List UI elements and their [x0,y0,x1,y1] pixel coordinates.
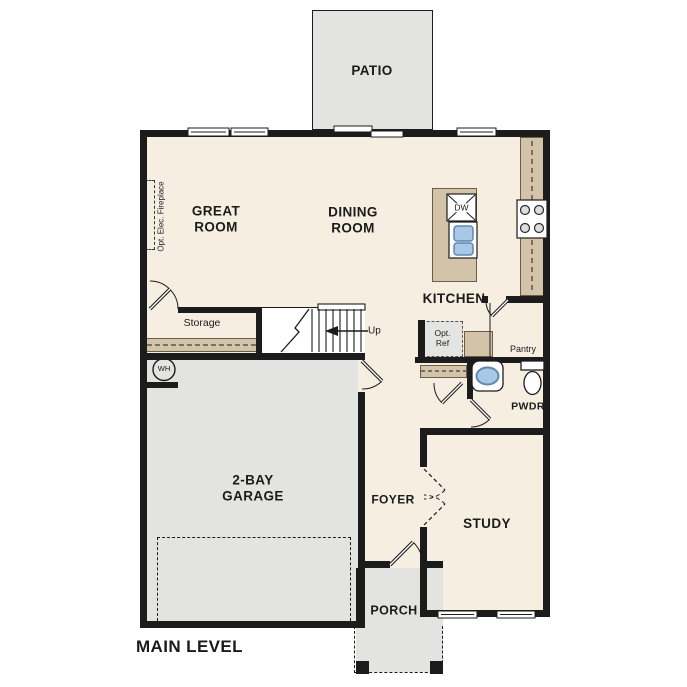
up-label: Up [368,326,381,337]
pantry-label: Pantry [510,345,536,355]
great-room-label: GREAT ROOM [192,204,240,237]
plan-linework [0,0,687,687]
foyer-label: FOYER [371,493,414,508]
patio-label: PATIO [351,63,392,79]
porch-label: PORCH [370,603,417,618]
stairs-group [281,304,368,352]
fireplace-label: Opt. Elec. Fireplace [157,172,170,262]
dishwasher-label: DW [453,203,469,212]
study-label: STUDY [463,516,511,532]
floor-plan: Opt. Ref [0,0,687,687]
main-level-title: MAIN LEVEL [136,637,243,658]
dining-room-label: DINING ROOM [328,205,378,238]
storage-label: Storage [184,318,221,330]
water-heater-label: WH [158,365,171,373]
powder-label: PWDR [511,401,545,414]
garage-label: 2-BAY GARAGE [222,473,284,506]
kitchen-label: KITCHEN [423,291,486,307]
